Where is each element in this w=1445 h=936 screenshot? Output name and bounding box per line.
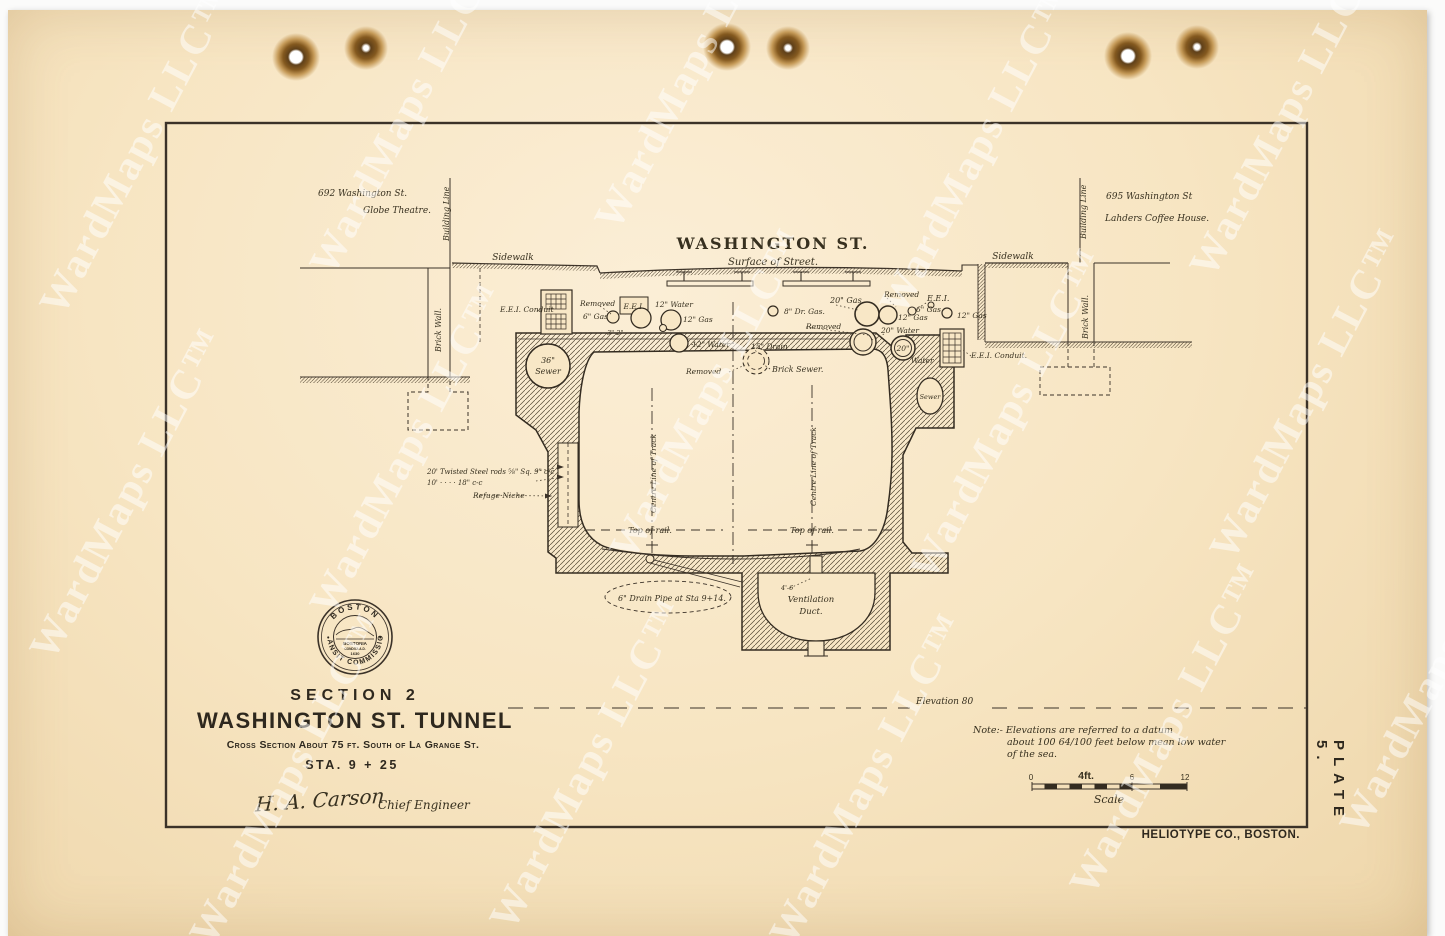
drawing-label: 6 xyxy=(1130,773,1135,782)
drawing-label: 6" Gas xyxy=(583,312,608,321)
refuge-niche xyxy=(558,443,578,527)
sewer-36in xyxy=(526,344,570,388)
drawing-label: 20" Gas xyxy=(829,296,862,305)
drawing-label: Elevation 80 xyxy=(915,697,974,707)
drawing-label: Sidewalk xyxy=(492,253,534,263)
drawing-label: Brick Wall. xyxy=(1081,295,1090,340)
drawing-label: Sewer xyxy=(920,393,942,401)
drawing-label: Building Line xyxy=(442,186,451,242)
drawing-label: Top of rail. xyxy=(790,526,834,535)
drawing-label: 12" Gas xyxy=(957,311,987,320)
drawing-label: E.E.I. Conduit. xyxy=(970,351,1027,360)
drawing-label: 12" Water xyxy=(692,340,730,349)
seal-bostonia: BOSTONIA xyxy=(343,641,367,646)
drawing-label: Duct. xyxy=(798,607,822,617)
drawing-label: 20' Twisted Steel rods ⅝" Sq. 9" c-c xyxy=(426,468,554,476)
drawing-label: Centre Line of Track xyxy=(649,434,658,513)
drawing-label: Sidewalk xyxy=(992,252,1034,262)
drawing-label: Top of rail. xyxy=(628,526,672,535)
drawing-label: 36" xyxy=(541,356,555,365)
drawing-label: Brick Sewer. xyxy=(771,365,823,374)
note-line-1: Note:- Elevations are referred to a datu… xyxy=(973,725,1243,737)
drawing-label: 8" Dr. Gas. xyxy=(784,307,825,316)
drawing-label: Building Line xyxy=(1079,184,1088,240)
drawing-label: Refuge Niche xyxy=(472,491,525,500)
drawing-label: 12" Gas xyxy=(683,315,713,324)
drawing-label: WASHINGTON ST. xyxy=(676,234,870,253)
drawing-label: Lahders Coffee House. xyxy=(1104,214,1209,224)
drawing-label: Removed xyxy=(883,290,919,299)
scale-bar xyxy=(1032,782,1187,791)
drawing-label: 692 Washington St. xyxy=(318,189,407,199)
drawing-label: 6" Gas xyxy=(916,305,941,314)
drawing-label: E.E.I. xyxy=(622,302,644,311)
printer-credit: HELIOTYPE CO., BOSTON. xyxy=(1130,829,1300,841)
tunnel-masonry xyxy=(516,333,954,650)
drawing-label: Brick Wall. xyxy=(434,308,443,353)
eei-conduit-right xyxy=(940,329,964,367)
drawing-label: 10' · · · · 18" c-c xyxy=(427,479,482,487)
drawing-label: 6" Drain Pipe at Sta 9+14. xyxy=(618,594,726,603)
section-heading: SECTION 2 xyxy=(245,687,465,705)
scanned-drawing-page: BOSTON TRANSIT COMMISSION • • BOSTONIA C… xyxy=(0,0,1445,936)
drawing-label: 695 Washington St xyxy=(1106,192,1193,202)
station-label: STA. 9 + 25 xyxy=(272,758,432,772)
drawing-label: Removed xyxy=(579,299,615,308)
drawing-label: 20" xyxy=(896,344,910,353)
drawing-label: Removed xyxy=(805,322,841,331)
drawing-label: 12" Gas xyxy=(898,313,928,322)
drawing-label: 4ft. xyxy=(1078,770,1094,782)
tunnel-cross-section-drawing: BOSTON TRANSIT COMMISSION • • BOSTONIA C… xyxy=(0,0,1445,936)
drawing-label: Surface of Street. xyxy=(728,257,818,268)
drawing-subtitle: Cross Section About 75 ft. South of La G… xyxy=(203,739,503,751)
datum-note: Note:- Elevations are referred to a datu… xyxy=(973,725,1243,761)
drawing-label: 12 xyxy=(1181,773,1190,782)
drawing-label: Ventilation xyxy=(788,595,835,605)
seal-1630: 1630 xyxy=(351,651,361,656)
drawing-label: 4'-6 xyxy=(780,584,793,592)
seal-skyline xyxy=(336,627,374,636)
drawing-label: 3" 2" xyxy=(607,329,623,337)
drawing-label: 12" Water xyxy=(655,300,693,309)
drawing-label: Scale xyxy=(1094,793,1125,806)
drawing-label: 20" Water xyxy=(880,326,919,335)
drawing-label: Centre Line of Track xyxy=(809,427,818,506)
drawing-label: E.E.I. xyxy=(926,294,949,303)
drawing-label: 0 xyxy=(1029,773,1034,782)
drawing-label: Sewer xyxy=(535,367,562,376)
drawing-label: Water xyxy=(911,356,934,365)
right-building xyxy=(1040,178,1110,395)
drawing-label: Globe Theatre. xyxy=(363,206,431,216)
plate-number: PLATE 5. xyxy=(1313,740,1347,850)
drawing-title: WASHINGTON ST. TUNNEL xyxy=(195,708,515,734)
boston-transit-commission-seal: BOSTON TRANSIT COMMISSION • • BOSTONIA C… xyxy=(318,600,392,674)
note-line-3: of the sea. xyxy=(973,749,1243,761)
drawing-label: 15" Drain xyxy=(751,342,788,351)
drawing-label: Removed xyxy=(685,367,721,376)
engineer-role: Chief Engineer xyxy=(378,798,488,812)
note-line-2: about 100 64/100 feet below mean low wat… xyxy=(973,737,1243,749)
drawing-label: E.E.I. Conduit xyxy=(499,305,555,314)
